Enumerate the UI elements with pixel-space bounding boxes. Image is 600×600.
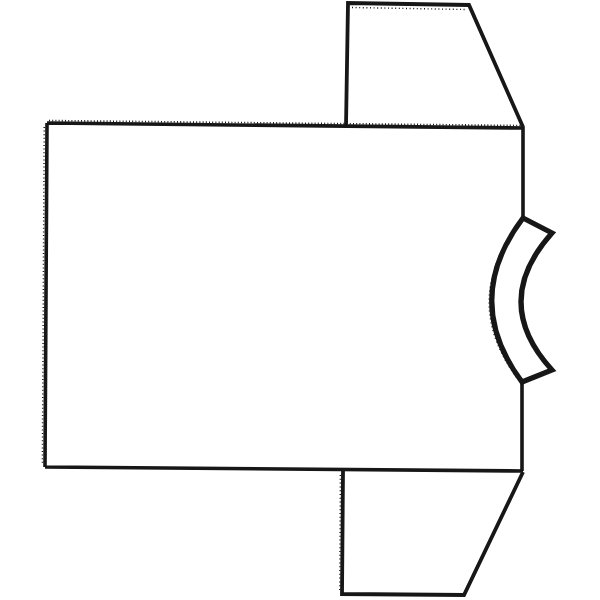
bottom-sleeve-outline: [342, 471, 523, 595]
tshirt-line-drawing: [0, 0, 600, 600]
top-sleeve-outline: [346, 3, 523, 127]
top-sleeve-top-stitch-texture: [352, 8, 466, 10]
bottom-sleeve-left-stitch-texture: [340, 475, 341, 592]
collar-neckband: [492, 218, 552, 382]
body-panel-outline: [45, 123, 523, 471]
drawing-canvas: [0, 0, 600, 600]
